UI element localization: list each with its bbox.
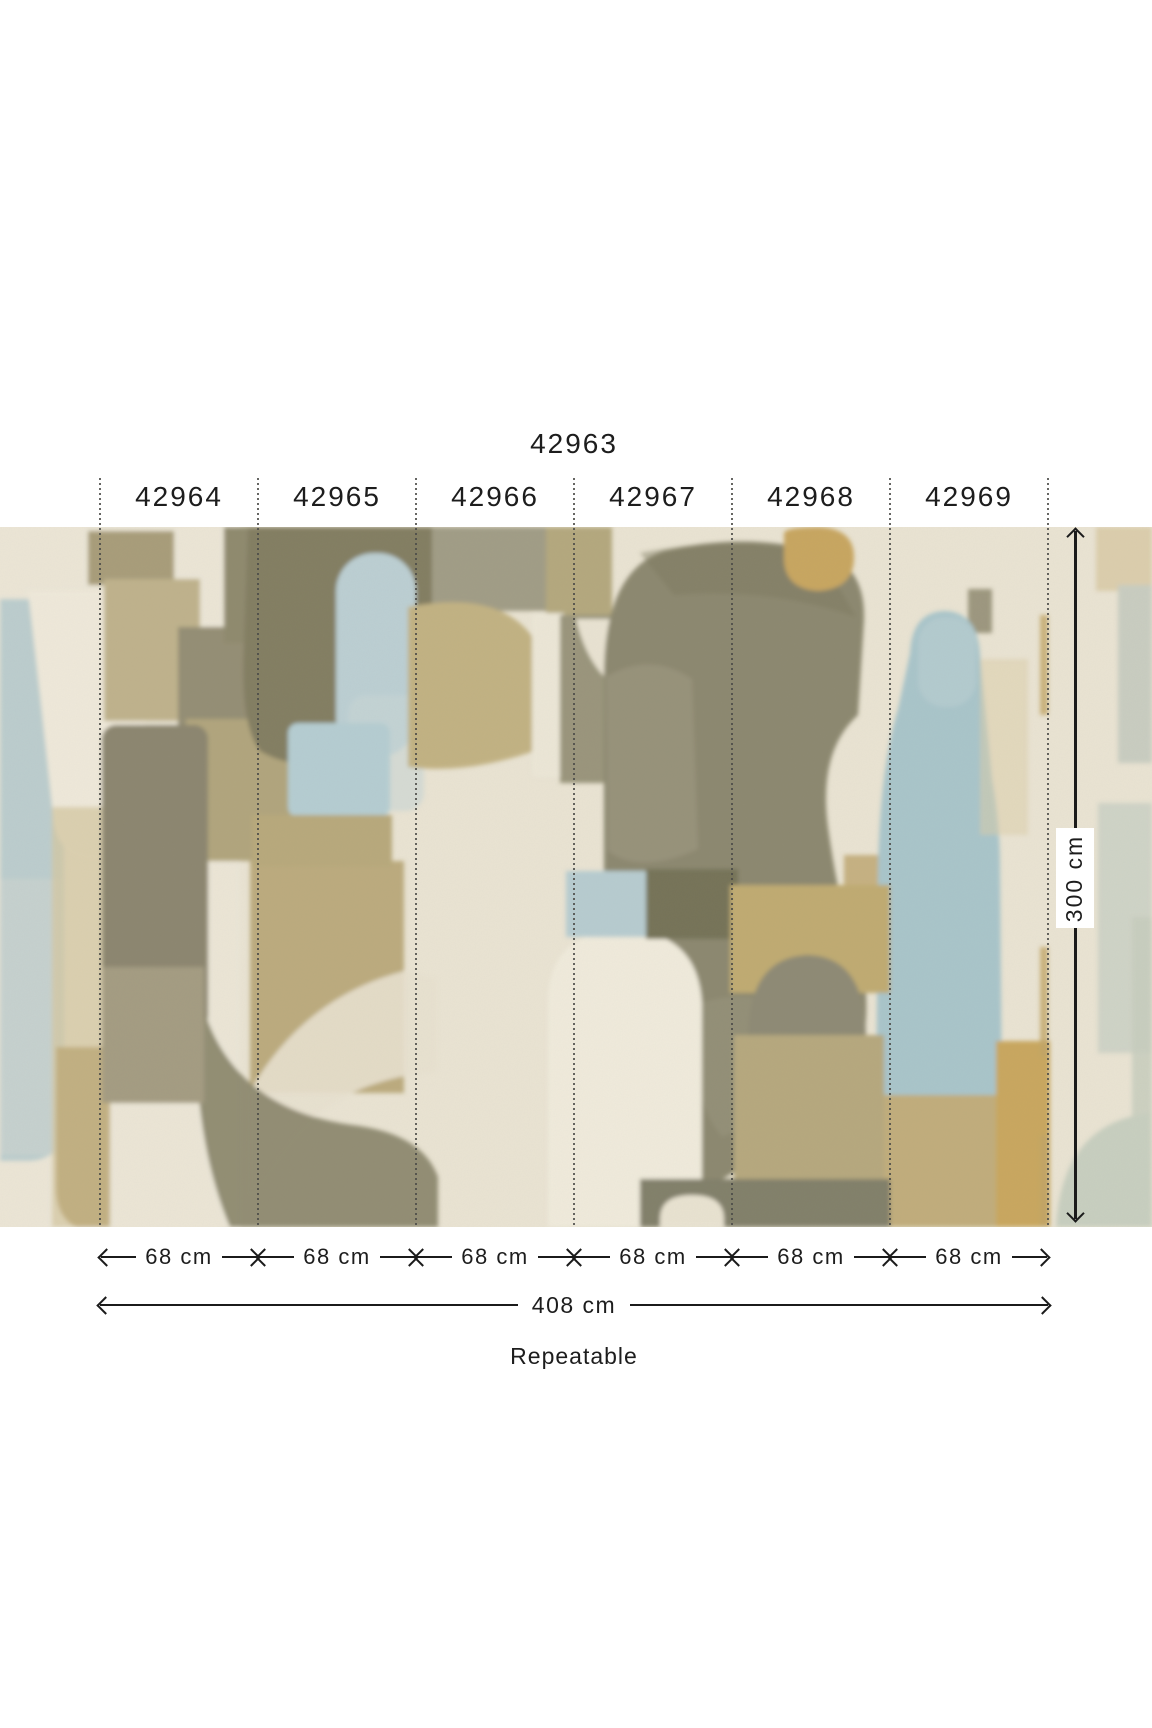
panel-width-measure: 68 cm xyxy=(574,1241,732,1273)
panel-separator-line xyxy=(573,478,575,1227)
dimension-line xyxy=(575,1256,610,1258)
dimension-line xyxy=(222,1256,257,1258)
arrow-head-left-icon xyxy=(97,1248,115,1266)
height-label: 300 cm xyxy=(1056,828,1094,928)
arrow-head-left-icon xyxy=(887,1248,905,1266)
dimension-line xyxy=(259,1256,294,1258)
arrow-head-left-icon xyxy=(571,1248,589,1266)
panel-code: 42965 xyxy=(258,479,416,515)
arrow-head-left-icon xyxy=(96,1296,114,1314)
panel-separator-line xyxy=(257,478,259,1227)
mural-code: 42963 xyxy=(100,426,1048,462)
panel-code: 42966 xyxy=(416,479,574,515)
panel-separator-line xyxy=(415,478,417,1227)
panel-width-measure: 68 cm xyxy=(416,1241,574,1273)
wallpaper-panel-dimension-diagram: 42963 42964 42965 42966 42967 42968 4296… xyxy=(0,0,1152,1728)
panel-width-label: 68 cm xyxy=(935,1244,1002,1270)
dimension-line xyxy=(1012,1256,1047,1258)
dimension-line xyxy=(891,1256,926,1258)
arrow-head-right-icon xyxy=(1032,1248,1050,1266)
panel-separator-line xyxy=(1047,478,1049,1227)
dimension-line xyxy=(100,1304,518,1306)
arrow-head-left-icon xyxy=(413,1248,431,1266)
panel-code: 42964 xyxy=(100,479,258,515)
panel-separator-line xyxy=(889,478,891,1227)
panel-width-label: 68 cm xyxy=(777,1244,844,1270)
dimension-line xyxy=(380,1256,415,1258)
arrow-head-right-icon xyxy=(1033,1296,1051,1314)
panel-width-label: 68 cm xyxy=(461,1244,528,1270)
panel-code: 42968 xyxy=(732,479,890,515)
dimension-line xyxy=(630,1304,1048,1306)
panel-separator-line xyxy=(731,478,733,1227)
dimension-line xyxy=(417,1256,452,1258)
arrow-head-left-icon xyxy=(729,1248,747,1266)
dimension-line xyxy=(538,1256,573,1258)
repeat-note: Repeatable xyxy=(100,1340,1048,1372)
mural-preview-image xyxy=(0,527,1152,1227)
dimension-line xyxy=(854,1256,889,1258)
dimension-line xyxy=(101,1256,136,1258)
panel-width-row: 68 cm 68 cm 68 cm 68 cm 68 cm 68 cm xyxy=(100,1241,1048,1273)
panel-width-measure: 68 cm xyxy=(258,1241,416,1273)
dimension-line xyxy=(696,1256,731,1258)
panel-code: 42967 xyxy=(574,479,732,515)
total-width-measure: 408 cm xyxy=(100,1289,1048,1321)
panel-width-label: 68 cm xyxy=(303,1244,370,1270)
panel-width-measure: 68 cm xyxy=(890,1241,1048,1273)
panel-width-measure: 68 cm xyxy=(732,1241,890,1273)
panel-width-measure: 68 cm xyxy=(100,1241,258,1273)
height-label-text: 300 cm xyxy=(1062,834,1089,921)
panel-width-label: 68 cm xyxy=(619,1244,686,1270)
panel-separator-line xyxy=(99,478,101,1227)
arrow-head-left-icon xyxy=(255,1248,273,1266)
mural-artwork xyxy=(0,527,1152,1227)
total-width-label: 408 cm xyxy=(532,1292,616,1319)
panel-code: 42969 xyxy=(890,479,1048,515)
dimension-line xyxy=(733,1256,768,1258)
panel-width-label: 68 cm xyxy=(145,1244,212,1270)
